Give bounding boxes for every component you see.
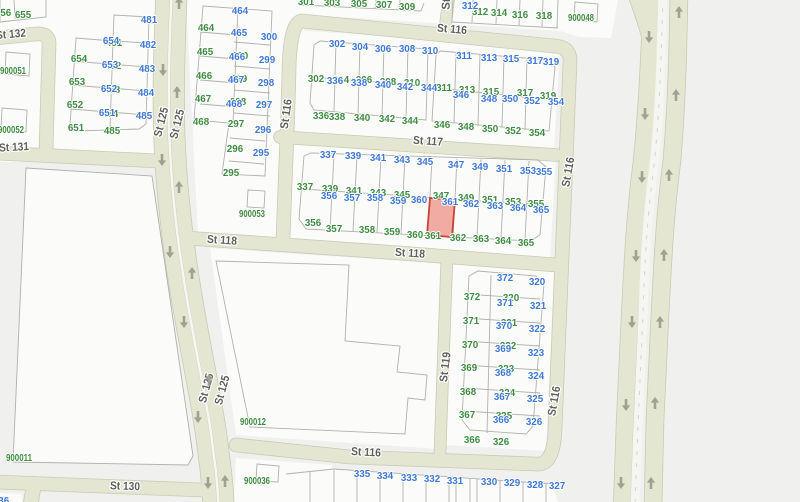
svg-text:307: 307 xyxy=(376,0,393,11)
svg-text:365: 365 xyxy=(533,205,550,216)
svg-text:332: 332 xyxy=(424,474,441,485)
svg-text:354: 354 xyxy=(529,128,546,139)
svg-text:320: 320 xyxy=(529,277,546,288)
svg-text:355: 355 xyxy=(536,167,553,178)
svg-text:319: 319 xyxy=(543,57,560,68)
svg-text:653: 653 xyxy=(69,77,86,88)
svg-text:361: 361 xyxy=(442,197,459,208)
svg-text:343: 343 xyxy=(394,155,411,166)
svg-text:368: 368 xyxy=(495,368,512,379)
svg-text:St: St xyxy=(440,0,453,10)
svg-text:346: 346 xyxy=(453,90,470,101)
svg-text:297: 297 xyxy=(256,100,273,111)
svg-text:344: 344 xyxy=(402,116,419,127)
svg-text:348: 348 xyxy=(481,94,498,105)
svg-text:367: 367 xyxy=(494,392,511,403)
svg-text:297: 297 xyxy=(228,119,245,130)
svg-text:St 131: St 131 xyxy=(0,141,30,155)
svg-text:468: 468 xyxy=(226,99,243,110)
svg-text:325: 325 xyxy=(527,394,544,405)
svg-text:305: 305 xyxy=(351,0,368,10)
svg-text:338: 338 xyxy=(351,78,368,89)
svg-text:361: 361 xyxy=(425,231,442,242)
svg-text:369: 369 xyxy=(461,363,478,374)
svg-text:360: 360 xyxy=(407,230,424,241)
svg-text:314: 314 xyxy=(491,8,508,19)
svg-text:342: 342 xyxy=(379,114,396,125)
svg-text:466: 466 xyxy=(229,52,246,63)
svg-text:344: 344 xyxy=(421,83,438,94)
svg-text:311: 311 xyxy=(436,83,452,94)
svg-text:363: 363 xyxy=(487,201,504,212)
svg-text:651: 651 xyxy=(99,108,116,119)
svg-text:484: 484 xyxy=(138,88,155,99)
svg-text:345: 345 xyxy=(417,157,434,168)
svg-text:331: 331 xyxy=(447,476,464,487)
svg-text:311: 311 xyxy=(456,51,472,62)
svg-text:336: 336 xyxy=(313,111,330,122)
svg-text:368: 368 xyxy=(460,387,477,398)
svg-text:352: 352 xyxy=(524,96,541,107)
svg-text:337: 337 xyxy=(297,182,314,193)
svg-text:309: 309 xyxy=(399,2,416,13)
svg-text:485: 485 xyxy=(136,111,153,122)
svg-text:323: 323 xyxy=(528,348,545,359)
svg-text:349: 349 xyxy=(472,162,489,173)
svg-text:348: 348 xyxy=(458,122,475,133)
svg-text:464: 464 xyxy=(198,23,215,34)
svg-text:299: 299 xyxy=(259,55,276,66)
svg-text:358: 358 xyxy=(359,225,376,236)
svg-text:298: 298 xyxy=(258,78,275,89)
svg-text:342: 342 xyxy=(397,82,414,93)
svg-text:370: 370 xyxy=(462,340,479,351)
svg-text:359: 359 xyxy=(390,196,407,207)
svg-text:900051: 900051 xyxy=(0,66,26,77)
svg-text:St 130: St 130 xyxy=(110,480,140,493)
svg-text:335: 335 xyxy=(354,469,371,480)
svg-text:St 118: St 118 xyxy=(395,247,426,261)
svg-text:295: 295 xyxy=(223,168,240,179)
svg-text:326: 326 xyxy=(493,437,510,448)
svg-text:900048: 900048 xyxy=(568,13,594,24)
svg-text:337: 337 xyxy=(320,150,337,161)
svg-text:653: 653 xyxy=(102,60,119,71)
svg-text:336: 336 xyxy=(327,76,344,87)
svg-text:327: 327 xyxy=(549,481,566,492)
svg-text:364: 364 xyxy=(495,236,512,247)
svg-text:St 116: St 116 xyxy=(351,446,382,460)
svg-text:350: 350 xyxy=(482,124,499,135)
svg-text:302: 302 xyxy=(308,74,325,85)
svg-text:317: 317 xyxy=(527,56,544,67)
svg-text:367: 367 xyxy=(459,410,476,421)
svg-text:316: 316 xyxy=(512,10,529,21)
svg-text:357: 357 xyxy=(326,224,343,235)
svg-text:357: 357 xyxy=(344,193,361,204)
svg-text:363: 363 xyxy=(473,234,490,245)
svg-text:468: 468 xyxy=(193,117,210,128)
svg-text:369: 369 xyxy=(495,344,512,355)
svg-text:366: 366 xyxy=(493,415,510,426)
svg-text:296: 296 xyxy=(255,125,272,136)
svg-text:346: 346 xyxy=(434,120,451,131)
svg-text:300: 300 xyxy=(261,32,278,43)
svg-text:330: 330 xyxy=(481,477,498,488)
svg-text:465: 465 xyxy=(197,47,214,58)
svg-text:372: 372 xyxy=(464,292,481,303)
svg-text:324: 324 xyxy=(528,371,545,382)
svg-text:340: 340 xyxy=(354,113,371,124)
svg-text:295: 295 xyxy=(253,148,270,159)
svg-text:483: 483 xyxy=(139,64,156,75)
svg-text:336: 336 xyxy=(0,496,10,502)
svg-text:339: 339 xyxy=(345,151,362,162)
svg-text:308: 308 xyxy=(399,44,416,55)
svg-text:312: 312 xyxy=(462,1,479,12)
svg-text:362: 362 xyxy=(463,199,480,210)
svg-text:328: 328 xyxy=(527,480,544,491)
svg-text:333: 333 xyxy=(401,473,418,484)
svg-text:318: 318 xyxy=(536,11,553,22)
svg-text:310: 310 xyxy=(422,46,439,57)
svg-text:467: 467 xyxy=(228,75,245,86)
svg-text:St 117: St 117 xyxy=(413,135,444,149)
svg-text:371: 371 xyxy=(463,316,480,327)
svg-text:326: 326 xyxy=(526,417,543,428)
svg-text:356: 356 xyxy=(305,218,322,229)
svg-text:362: 362 xyxy=(450,233,467,244)
svg-text:358: 358 xyxy=(367,193,384,204)
svg-text:302: 302 xyxy=(329,39,346,50)
svg-text:481: 481 xyxy=(141,15,158,26)
svg-text:351: 351 xyxy=(496,164,513,175)
svg-text:485: 485 xyxy=(104,126,121,137)
svg-text:655: 655 xyxy=(15,10,32,21)
svg-text:466: 466 xyxy=(196,71,213,82)
svg-text:482: 482 xyxy=(140,40,157,51)
svg-text:900036: 900036 xyxy=(244,476,270,487)
svg-text:356: 356 xyxy=(321,191,338,202)
svg-text:656: 656 xyxy=(0,8,12,19)
svg-text:654: 654 xyxy=(71,54,88,65)
svg-text:304: 304 xyxy=(352,42,369,53)
svg-text:654: 654 xyxy=(103,36,120,47)
svg-text:900012: 900012 xyxy=(240,417,266,428)
svg-text:651: 651 xyxy=(68,123,85,134)
svg-text:338: 338 xyxy=(329,112,346,123)
svg-text:St 118: St 118 xyxy=(207,234,238,248)
svg-text:341: 341 xyxy=(370,153,387,164)
svg-text:366: 366 xyxy=(464,435,481,446)
svg-text:360: 360 xyxy=(411,195,428,206)
svg-text:315: 315 xyxy=(503,54,520,65)
svg-text:350: 350 xyxy=(502,94,519,105)
svg-text:329: 329 xyxy=(504,478,521,489)
svg-text:296: 296 xyxy=(227,144,244,155)
svg-text:465: 465 xyxy=(231,28,248,39)
svg-text:359: 359 xyxy=(384,227,401,238)
svg-text:303: 303 xyxy=(324,0,341,9)
svg-text:900053: 900053 xyxy=(239,209,265,220)
svg-text:347: 347 xyxy=(448,160,465,171)
svg-text:313: 313 xyxy=(481,53,498,64)
svg-text:652: 652 xyxy=(101,84,118,95)
svg-text:467: 467 xyxy=(195,94,212,105)
svg-text:464: 464 xyxy=(232,6,249,17)
svg-text:321: 321 xyxy=(530,301,547,312)
svg-text:370: 370 xyxy=(496,321,513,332)
svg-text:372: 372 xyxy=(497,273,514,284)
svg-text:900011: 900011 xyxy=(6,453,32,464)
svg-text:652: 652 xyxy=(67,100,84,111)
svg-text:900052: 900052 xyxy=(0,125,24,136)
svg-text:354: 354 xyxy=(548,97,565,108)
svg-text:353: 353 xyxy=(520,166,537,177)
svg-text:334: 334 xyxy=(377,471,394,482)
svg-text:301: 301 xyxy=(298,0,315,8)
svg-text:371: 371 xyxy=(497,298,514,309)
svg-text:340: 340 xyxy=(375,80,392,91)
svg-text:322: 322 xyxy=(529,324,546,335)
svg-text:365: 365 xyxy=(518,238,535,249)
svg-text:306: 306 xyxy=(375,44,392,55)
svg-text:352: 352 xyxy=(505,126,522,137)
svg-text:364: 364 xyxy=(510,203,527,214)
